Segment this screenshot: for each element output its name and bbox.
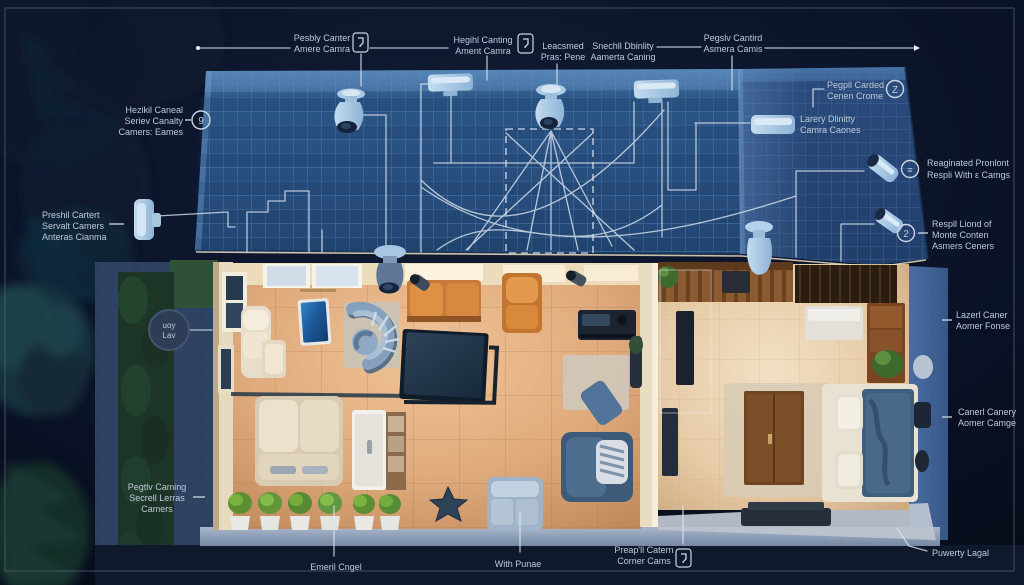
- svg-text:Preap'll Catern: Preap'll Catern: [614, 545, 673, 555]
- svg-text:Secrell Lerras: Secrell Lerras: [129, 493, 185, 503]
- svg-text:Camers: Camers: [141, 504, 173, 514]
- svg-text:Camra Caones: Camra Caones: [800, 125, 861, 135]
- svg-text:Asmera Camis: Asmera Camis: [703, 44, 763, 54]
- svg-text:Larery Dlinitty: Larery Dlinitty: [800, 114, 856, 124]
- svg-text:Seriev Canalty: Seriev Canalty: [124, 116, 183, 126]
- svg-text:Puwerty Lagal: Puwerty Lagal: [932, 548, 989, 558]
- svg-text:Servalt Camers: Servalt Camers: [42, 221, 105, 231]
- svg-text:Asmers Ceners: Asmers Ceners: [932, 241, 995, 251]
- svg-text:Snechll Dbinlity: Snechll Dbinlity: [592, 41, 654, 51]
- svg-text:Amere Camra: Amere Camra: [294, 44, 350, 54]
- svg-text:Preshil Cartert: Preshil Cartert: [42, 210, 100, 220]
- svg-text:Cenen Crome: Cenen Crome: [827, 91, 883, 101]
- svg-text:Lav: Lav: [163, 331, 176, 340]
- svg-text:Reaginated Pronlont: Reaginated Pronlont: [927, 158, 1010, 168]
- svg-text:uoy: uoy: [163, 321, 176, 330]
- svg-text:Pras: Pene: Pras: Pene: [541, 52, 586, 62]
- svg-text:Anteras Cianma: Anteras Cianma: [42, 232, 107, 242]
- svg-text:Ament Camra: Ament Camra: [455, 46, 511, 56]
- svg-text:Hezikil Caneal: Hezikil Caneal: [125, 105, 183, 115]
- svg-text:Leacsmed: Leacsmed: [542, 41, 584, 51]
- svg-text:Lazerl Caner: Lazerl Caner: [956, 310, 1008, 320]
- svg-text:Aomer Fonse: Aomer Fonse: [956, 321, 1010, 331]
- svg-text:Respli With ε Camgs: Respli With ε Camgs: [927, 170, 1011, 180]
- svg-text:Aomer Camge: Aomer Camge: [958, 418, 1016, 428]
- svg-text:Z: Z: [892, 85, 898, 96]
- svg-text:Pegslv Cantird: Pegslv Cantird: [704, 33, 763, 43]
- svg-text:Camers: Eames: Camers: Eames: [118, 127, 183, 137]
- svg-text:≡: ≡: [907, 165, 912, 175]
- svg-text:Canerl Canery: Canerl Canery: [958, 407, 1017, 417]
- svg-text:Pegtlv Caming: Pegtlv Caming: [128, 482, 187, 492]
- svg-text:Aamerta Caning: Aamerta Caning: [590, 52, 655, 62]
- svg-text:Pegpll Carded: Pegpll Carded: [827, 80, 884, 90]
- svg-text:Pesbly Canter: Pesbly Canter: [294, 33, 351, 43]
- svg-text:Respll Liond of: Respll Liond of: [932, 219, 992, 229]
- svg-text:9: 9: [198, 116, 204, 127]
- svg-text:Hegihl Canting: Hegihl Canting: [453, 35, 512, 45]
- svg-text:2: 2: [903, 229, 909, 240]
- svg-text:Emeril Cngel: Emeril Cngel: [310, 562, 362, 572]
- svg-text:With Punae: With Punae: [495, 559, 542, 569]
- svg-text:Corner Cams: Corner Cams: [617, 556, 671, 566]
- svg-text:Monte Conten: Monte Conten: [932, 230, 989, 240]
